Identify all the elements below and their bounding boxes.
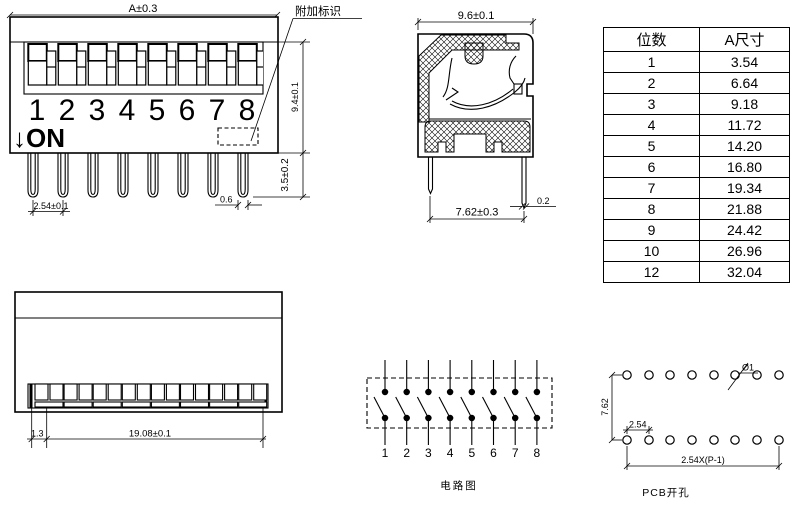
positions-cell: 1 (604, 52, 700, 73)
switch-symbol (439, 360, 453, 445)
drill-hole (645, 371, 653, 379)
table-row: 1026.96 (604, 241, 790, 262)
dimension-cell: 16.80 (700, 157, 790, 178)
dim-bottom-offsets: 1.3 19.08±0.1 (27, 408, 266, 448)
circuit-boundary (367, 378, 552, 428)
table-row: 411.72 (604, 115, 790, 136)
drill-hole (731, 371, 739, 379)
switch-number: 7 (209, 94, 226, 127)
col-dimension-header: A尺寸 (700, 28, 790, 52)
table-row: 719.34 (604, 178, 790, 199)
positions-cell: 2 (604, 73, 700, 94)
table-row: 1232.04 (604, 262, 790, 283)
table-row: 514.20 (604, 136, 790, 157)
dimension-cell: 26.96 (700, 241, 790, 262)
side-pin-right (522, 157, 526, 208)
actuator-section-hatch (465, 43, 483, 64)
switch-number: 5 (149, 94, 166, 127)
dim-1908-label: 19.08±0.1 (129, 429, 171, 440)
drill-hole (666, 436, 674, 444)
table-row: 821.88 (604, 199, 790, 220)
circuit-switches (374, 360, 540, 445)
bottom-slots (35, 384, 267, 407)
table-row: 616.80 (604, 157, 790, 178)
switch-symbol (526, 360, 540, 445)
dim-35-label: 3.5±0.2 (280, 158, 291, 192)
dim-94-label: 9.4±0.1 (290, 82, 300, 112)
circuit-number: 2 (403, 446, 410, 460)
drill-hole (623, 436, 631, 444)
drawing-sheet: A±0.3 1 2 3 4 5 6 7 8 ↓ON (0, 0, 798, 506)
table-row: 924.42 (604, 220, 790, 241)
dim-span-label: 2.54X(P-1) (681, 455, 725, 465)
circuit-number: 7 (512, 446, 519, 460)
positions-cell: 9 (604, 220, 700, 241)
dim-pin-thickness: 0.2 (510, 196, 556, 210)
drill-hole (688, 436, 696, 444)
dip-pin (118, 153, 128, 197)
dim-06-label: 0.6 (220, 195, 233, 205)
dim-254p-label: 2.54 (629, 420, 647, 430)
dip-pin (28, 153, 38, 197)
positions-cell: 3 (604, 94, 700, 115)
dip-pin (88, 153, 98, 197)
dim-body-height: 9.4±0.1 (278, 39, 310, 156)
table-row: 13.54 (604, 52, 790, 73)
dim-a-label: A±0.3 (129, 3, 158, 15)
bottom-view-drawing: 1.3 19.08±0.1 (0, 285, 330, 465)
drill-holes-top-row (623, 371, 783, 379)
table-row: 26.64 (604, 73, 790, 94)
drill-hole (753, 436, 761, 444)
dim-254-label: 2.54±0.1 (34, 201, 69, 211)
switch-number: 6 (179, 94, 196, 127)
circuit-number: 1 (382, 446, 389, 460)
positions-cell: 10 (604, 241, 700, 262)
switch-symbol (396, 360, 410, 445)
circuit-diagram: 1 2 3 4 5 6 7 8 电路图 (355, 345, 590, 500)
positions-cell: 4 (604, 115, 700, 136)
dimension-cell: 11.72 (700, 115, 790, 136)
dim-row-gap: 7.62 (600, 372, 622, 443)
switch-symbol (417, 360, 431, 445)
drill-hole (753, 371, 761, 379)
dimension-cell: 9.18 (700, 94, 790, 115)
dimension-cell: 21.88 (700, 199, 790, 220)
positions-cell: 12 (604, 262, 700, 283)
size-table: 位数 A尺寸 13.54 26.64 39.18 411.72 514.20 6… (603, 27, 790, 283)
switch-symbol (504, 360, 518, 445)
dimension-cell: 19.34 (700, 178, 790, 199)
dim-pin-height: 3.5±0.2 (253, 153, 310, 200)
size-table-header-row: 位数 A尺寸 (604, 28, 790, 52)
drill-hole (775, 371, 783, 379)
switch-number: 8 (239, 94, 256, 127)
circuit-number: 8 (534, 446, 541, 460)
dimension-cell: 24.42 (700, 220, 790, 241)
drill-hole (666, 371, 674, 379)
dim-hole-pitch: 2.54 (623, 420, 653, 435)
positions-cell: 7 (604, 178, 700, 199)
dim-762gap-label: 7.62 (600, 398, 610, 416)
circuit-number-labels: 1 2 3 4 5 6 7 8 (382, 446, 541, 460)
switch-symbol (374, 360, 388, 445)
circuit-caption: 电路图 (440, 479, 478, 492)
drill-hole (688, 371, 696, 379)
switch-symbol (461, 360, 475, 445)
circuit-number: 6 (490, 446, 497, 460)
dim-96-label: 9.6±0.1 (458, 10, 495, 22)
drill-hole (731, 436, 739, 444)
on-marking: ↓ON (13, 123, 65, 153)
switch-number: 3 (89, 94, 106, 127)
switch-symbol (483, 360, 497, 445)
drill-hole (623, 371, 631, 379)
pin-row (28, 153, 248, 197)
pcb-drill-pattern: Ø1 7.62 2.54 2.54X(P-1) (588, 345, 798, 506)
drill-hole (710, 371, 718, 379)
front-view-drawing: A±0.3 1 2 3 4 5 6 7 8 ↓ON (0, 0, 370, 250)
dim-762-label: 7.62±0.3 (456, 207, 499, 219)
table-row: 39.18 (604, 94, 790, 115)
dim-dia-label: Ø1 (742, 363, 754, 373)
circuit-number: 4 (447, 446, 454, 460)
dimension-cell: 14.20 (700, 136, 790, 157)
dip-pin (178, 153, 188, 197)
positions-cell: 5 (604, 136, 700, 157)
side-pin-left (429, 157, 433, 194)
dimension-cell: 6.64 (700, 73, 790, 94)
circuit-number: 5 (468, 446, 475, 460)
dim-13-label: 1.3 (31, 429, 44, 439)
dimension-cell: 3.54 (700, 52, 790, 73)
marking-label: 附加标识 (295, 4, 341, 18)
col-positions-header: 位数 (604, 28, 700, 52)
dim-pin-span: 7.62±0.3 (427, 196, 527, 223)
circuit-number: 3 (425, 446, 432, 460)
dim-02-label: 0.2 (537, 196, 550, 206)
drill-hole (775, 436, 783, 444)
dip-pin (208, 153, 218, 197)
dimension-cell: 32.04 (700, 262, 790, 283)
dim-depth: 9.6±0.1 (415, 10, 536, 34)
switch-number: 4 (119, 94, 136, 127)
drill-hole (645, 436, 653, 444)
side-view-drawing: 9.6±0.1 7.62±0. (390, 0, 600, 235)
positions-cell: 8 (604, 199, 700, 220)
drill-hole (710, 436, 718, 444)
dim-overall-width: A±0.3 (7, 3, 280, 18)
pcb-caption: PCB开孔 (642, 486, 690, 499)
drill-holes-bottom-row (623, 436, 783, 444)
dip-pin (58, 153, 68, 197)
dim-hole-span: 2.54X(P-1) (624, 446, 782, 470)
dim-pin-pitch: 2.54±0.1 (28, 200, 70, 216)
positions-cell: 6 (604, 157, 700, 178)
dip-pin (238, 153, 248, 197)
dip-pin (148, 153, 158, 197)
